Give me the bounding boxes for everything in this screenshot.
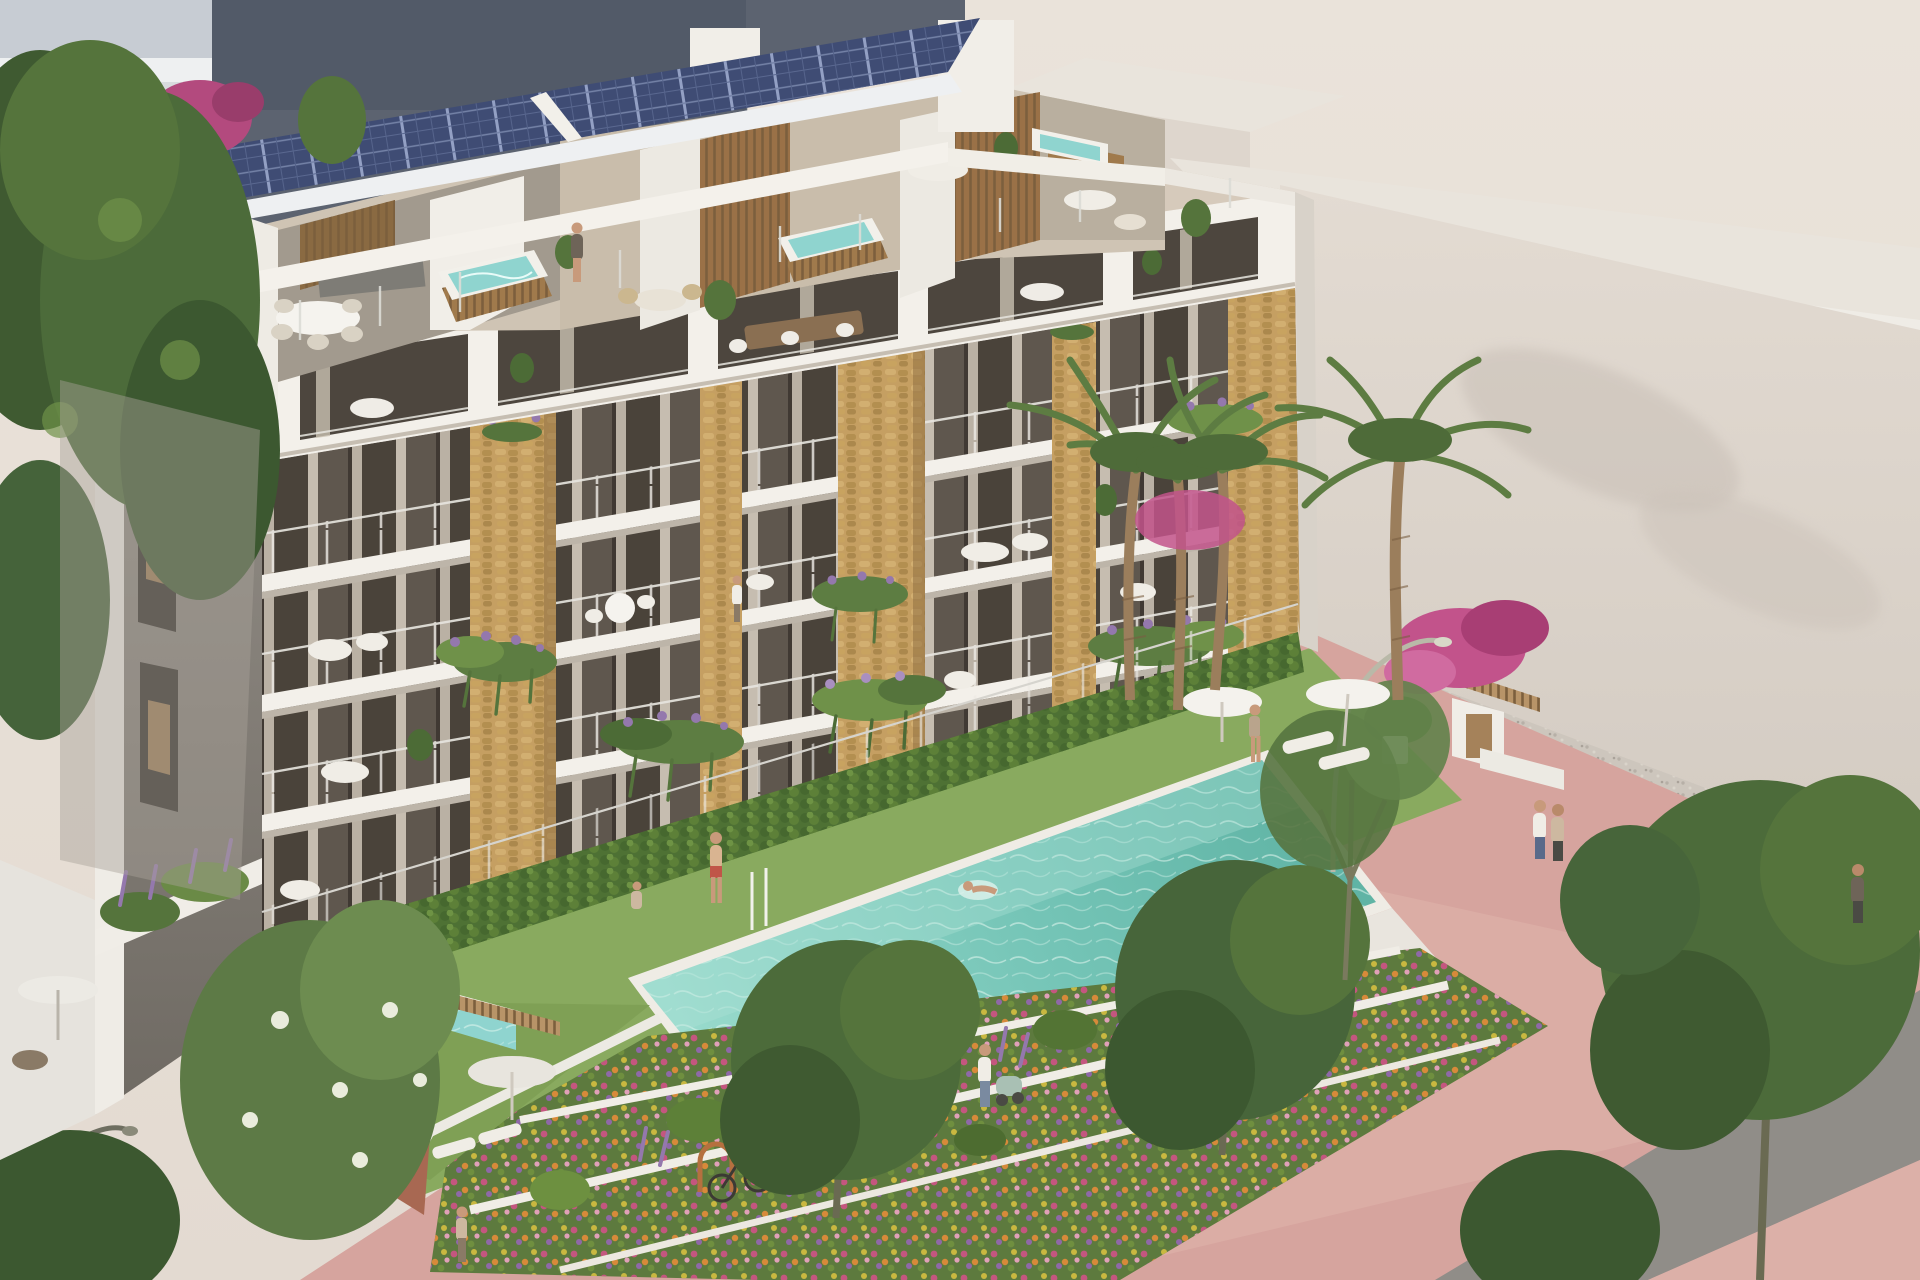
potted-plant [1181,199,1211,237]
scene-svg [0,0,1920,1280]
swimmer [958,880,998,900]
potted-plant [704,280,736,320]
terrace-table [634,289,686,311]
person-balcony-floor2 [631,882,642,910]
sofa [1064,190,1116,210]
gravel-side-yard [60,380,260,900]
roof-tree [298,76,366,164]
neighbor-terrace [0,860,98,1160]
white-divider [900,108,955,298]
bougainvillea-under-palms [1135,490,1245,550]
neighbor-chair [12,1050,48,1070]
render-canvas [0,0,1920,1280]
